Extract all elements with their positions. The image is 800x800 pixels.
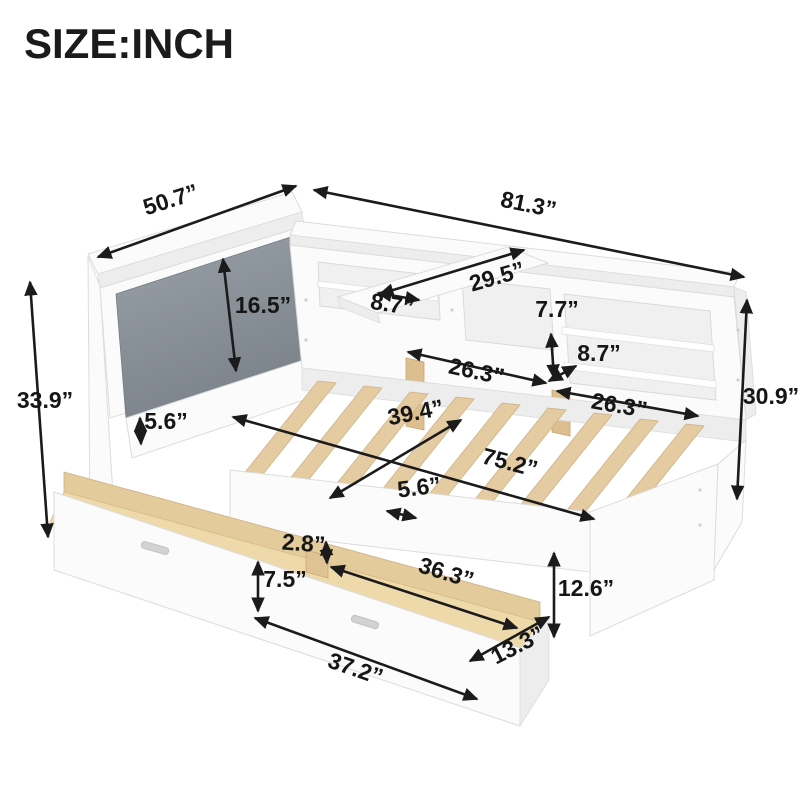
bed-foot-corner — [714, 440, 746, 570]
dim-label-headboard-width: 50.7” — [140, 179, 201, 221]
dim-label-slat-spacing: 5.6” — [396, 472, 442, 503]
bed-dimension-diagram: SIZE:INCH — [0, 0, 800, 800]
screw-dot — [304, 338, 307, 341]
dim-label-shelf-opening-height: 8.7” — [577, 340, 620, 366]
dim-arrow-divider-height — [326, 542, 327, 563]
screw-dot — [698, 523, 701, 526]
screw-dot — [736, 328, 739, 331]
screw-dot — [450, 308, 453, 311]
screw-dot — [736, 378, 739, 381]
dim-label-bookcase-height: 30.9” — [743, 383, 799, 409]
dim-label-under-cushion-gap: 5.6” — [144, 408, 187, 434]
screw-dot — [304, 298, 307, 301]
page-title: SIZE:INCH — [24, 20, 234, 67]
dim-label-side-rail-height: 12.6” — [558, 575, 614, 601]
dim-label-drawer-front-height: 7.5” — [263, 566, 306, 592]
dim-label-overall-length: 81.3” — [498, 186, 558, 223]
dim-label-cushion-height: 16.5” — [235, 292, 291, 318]
dim-arrow-under-cushion-gap — [140, 418, 141, 444]
dim-label-upper-shelf-opening-height: 7.7” — [535, 296, 578, 322]
dim-label-divider-height: 2.8” — [281, 529, 326, 558]
dimension-diagram-page: SIZE:INCH — [0, 0, 800, 800]
dim-label-overall-height: 33.9” — [17, 387, 73, 413]
bed-illustration — [50, 192, 756, 726]
screw-dot — [698, 488, 701, 491]
